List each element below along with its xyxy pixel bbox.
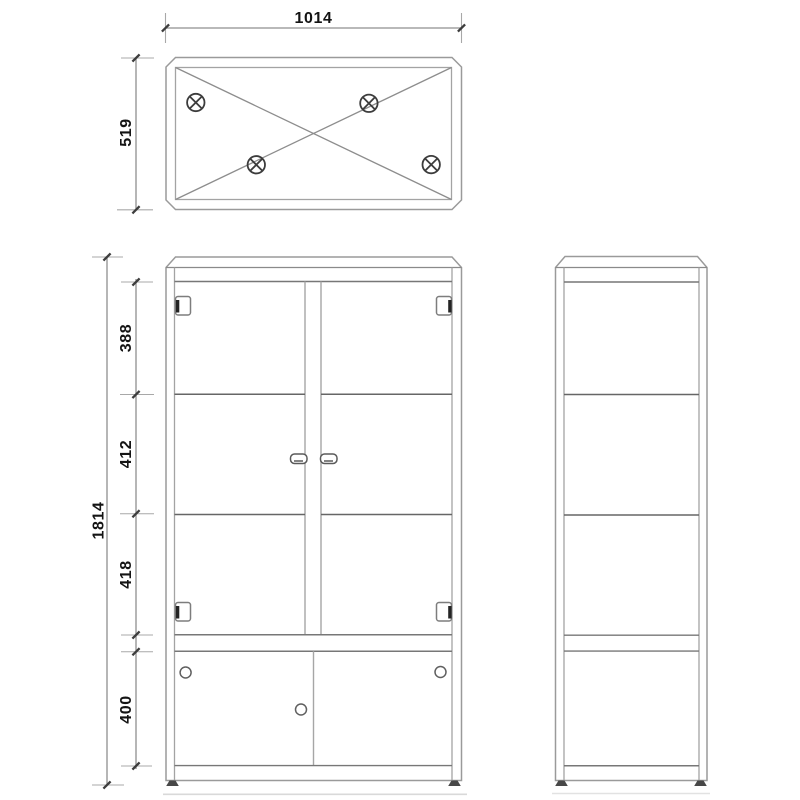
svg-text:388: 388 xyxy=(118,324,135,353)
svg-text:1814: 1814 xyxy=(90,502,107,540)
svg-text:418: 418 xyxy=(118,560,135,589)
svg-text:400: 400 xyxy=(118,695,135,724)
svg-text:519: 519 xyxy=(118,118,135,147)
svg-text:412: 412 xyxy=(118,440,135,469)
svg-text:1014: 1014 xyxy=(295,10,333,27)
